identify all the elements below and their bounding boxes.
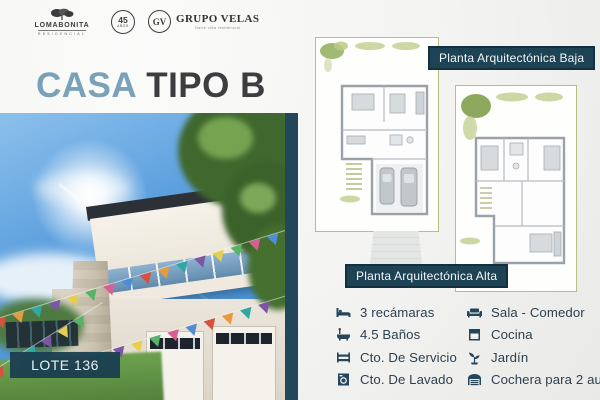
feature-label: Sala - Comedor [491, 305, 585, 320]
floor-plan-alta-drawing [456, 86, 573, 288]
anniversary-label: AÑOS [117, 24, 128, 28]
feature-label: Cto. De Lavado [360, 372, 453, 387]
laundry-icon [336, 372, 351, 387]
plan-alta-badge: Planta Arquitectónica Alta [345, 264, 508, 288]
sofa-icon [467, 305, 482, 320]
garage-icon [467, 372, 482, 387]
tree-foliage [240, 183, 276, 213]
feature-cto-lavado: Cto. De Lavado [336, 369, 443, 392]
feature-label: Jardín [491, 350, 528, 365]
feature-label: Cochera para 2 autos [491, 372, 600, 387]
lomabonita-tagline: RESIDENCIAL [38, 30, 86, 36]
grupo-velas-logo: GV GRUPO VELAS Darte vida residencial [148, 10, 259, 33]
features-column-right: Sala - Comedor Cocina Jardín Cochera par… [467, 301, 600, 391]
feature-label: Cto. De Servicio [360, 350, 457, 365]
grupo-velas-name: GRUPO VELAS [176, 13, 259, 25]
floor-plan-alta-card [455, 85, 577, 292]
feature-label: 4.5 Baños [360, 327, 420, 342]
flyer-page: LOMABONITA RESIDENCIAL 45 AÑOS GV GRUPO … [0, 0, 600, 400]
bed-icon [336, 305, 351, 320]
lomabonita-logo: LOMABONITA RESIDENCIAL [26, 8, 98, 36]
teal-accent-strip [285, 113, 298, 400]
feature-cochera: Cochera para 2 autos [467, 369, 600, 392]
features-column-left: 3 recámaras 4.5 Baños Cto. De Servicio C… [336, 301, 443, 391]
bathtub-icon [336, 327, 351, 342]
house-photo: LOTE 136 [0, 113, 298, 400]
gv-monogram-icon: GV [148, 10, 171, 33]
brand-row: LOMABONITA RESIDENCIAL 45 AÑOS GV GRUPO … [26, 8, 259, 36]
tree-icon [49, 8, 75, 21]
floor-plan-baja-card [315, 37, 439, 232]
feature-cocina: Cocina [467, 324, 600, 347]
floor-plan-baja-drawing [316, 38, 435, 228]
feature-cto-servicio: Cto. De Servicio [336, 346, 443, 369]
feature-jardin: Jardín [467, 346, 600, 369]
garden-icon [467, 350, 482, 365]
tree-foliage [198, 117, 253, 159]
garage-door [212, 326, 276, 400]
anniversary-badge: 45 AÑOS [111, 10, 135, 34]
feature-label: 3 recámaras [360, 305, 434, 320]
kitchen-icon [467, 327, 482, 342]
house-photo-image: LOTE 136 [0, 113, 285, 400]
service-room-icon [336, 350, 351, 365]
feature-banos: 4.5 Baños [336, 324, 443, 347]
page-title: CASATIPO B [36, 66, 266, 106]
title-word-tipo: TIPO B [146, 66, 266, 105]
anniversary-number: 45 [118, 16, 127, 24]
feature-label: Cocina [491, 327, 533, 342]
feature-sala-comedor: Sala - Comedor [467, 301, 600, 324]
lot-number-badge: LOTE 136 [10, 352, 120, 378]
lomabonita-name: LOMABONITA [35, 22, 90, 29]
feature-recamaras: 3 recámaras [336, 301, 443, 324]
features-list: 3 recámaras 4.5 Baños Cto. De Servicio C… [336, 301, 600, 391]
cloud [35, 173, 130, 203]
title-word-casa: CASA [36, 66, 137, 105]
plan-baja-badge: Planta Arquitectónica Baja [428, 46, 595, 70]
grupo-velas-tagline: Darte vida residencial [195, 26, 240, 30]
